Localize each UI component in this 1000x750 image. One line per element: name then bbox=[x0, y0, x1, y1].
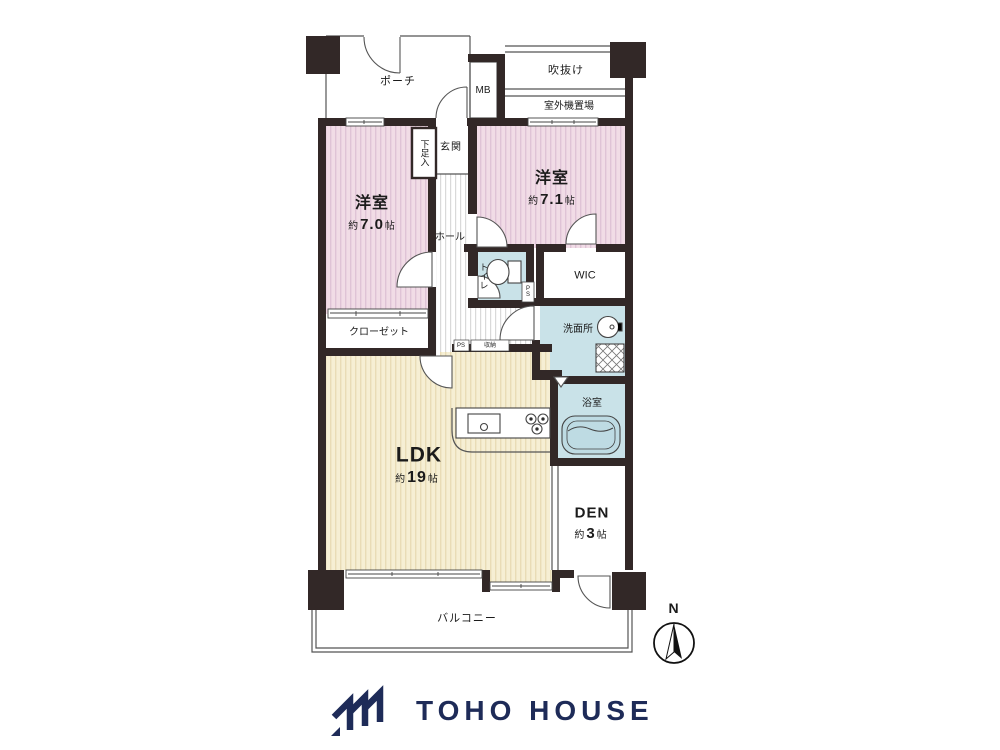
toilet-icon bbox=[487, 260, 521, 285]
size-unit: 帖 bbox=[565, 196, 576, 207]
washroom-label: 洗面所 bbox=[563, 325, 593, 335]
size-prefix: 約 bbox=[395, 474, 406, 485]
bathtub-icon bbox=[562, 416, 620, 454]
pillar-bottom-left bbox=[308, 570, 344, 610]
size-prefix: 約 bbox=[528, 196, 539, 207]
ldk-name: LDK bbox=[396, 445, 442, 466]
bedroom-right-name: 洋室 bbox=[535, 171, 569, 187]
den-name: DEN bbox=[575, 506, 610, 521]
den-size: 約3帖 bbox=[574, 526, 607, 542]
pillar-top-right bbox=[610, 42, 646, 78]
pillar-bottom-right bbox=[612, 572, 646, 610]
pipe-space-ldk-label: PS bbox=[457, 343, 465, 349]
bedroom-left-name: 洋室 bbox=[355, 196, 389, 212]
size-number: 7.0 bbox=[359, 216, 385, 233]
size-prefix: 約 bbox=[348, 221, 359, 232]
outdoor-unit-label: 室外機置場 bbox=[544, 102, 594, 112]
north-label: N bbox=[668, 601, 679, 615]
atrium-label: 吹抜け bbox=[548, 66, 584, 77]
compass-icon bbox=[654, 623, 694, 663]
size-number: 7.1 bbox=[539, 191, 565, 208]
bedroom-right-size: 約7.1帖 bbox=[528, 192, 576, 208]
brand-logo-icon bbox=[328, 684, 394, 738]
brand-logo: TOHO HOUSE bbox=[328, 684, 654, 738]
size-number: 19 bbox=[406, 469, 428, 486]
pillar-top-left bbox=[306, 36, 340, 74]
ldk-floor-b bbox=[440, 352, 550, 570]
wic-label: WIC bbox=[574, 271, 595, 282]
kitchen-counter-icon bbox=[456, 408, 550, 438]
washer-pan-icon bbox=[596, 344, 624, 372]
size-unit: 帖 bbox=[428, 474, 439, 485]
shoe-cabinet-label: 下足入 bbox=[420, 140, 429, 167]
size-prefix: 約 bbox=[574, 530, 585, 541]
pipe-space-toilet-label: PS bbox=[525, 286, 531, 298]
brand-name: TOHO HOUSE bbox=[416, 695, 654, 727]
balcony-label: バルコニー bbox=[437, 614, 497, 625]
hall-label: ホール bbox=[435, 233, 465, 243]
toilet-label: トイレ bbox=[479, 263, 488, 290]
size-number: 3 bbox=[585, 525, 596, 542]
den-sliding-partition bbox=[552, 466, 558, 570]
size-unit: 帖 bbox=[385, 221, 396, 232]
closet-sliding-doors bbox=[328, 309, 428, 318]
floor-plan-page: ポーチ MB 吹抜け 室外機置場 洋室 約7.0帖 洋室 約7.1帖 下足入 玄… bbox=[0, 0, 1000, 750]
closet-label: クローゼット bbox=[349, 328, 409, 338]
den-balcony-door bbox=[578, 576, 610, 608]
storage-label: 収納 bbox=[484, 343, 496, 349]
floor-plan-drawing bbox=[0, 0, 1000, 750]
meter-box-label: MB bbox=[476, 86, 491, 96]
bedroom-left-size: 約7.0帖 bbox=[348, 217, 396, 233]
hall-floor bbox=[436, 174, 468, 356]
bathroom-label: 浴室 bbox=[582, 399, 602, 409]
ldk-size: 約19帖 bbox=[395, 470, 439, 486]
porch-label: ポーチ bbox=[380, 77, 416, 88]
entrance-label: 玄関 bbox=[440, 143, 462, 153]
size-unit: 帖 bbox=[597, 530, 608, 541]
